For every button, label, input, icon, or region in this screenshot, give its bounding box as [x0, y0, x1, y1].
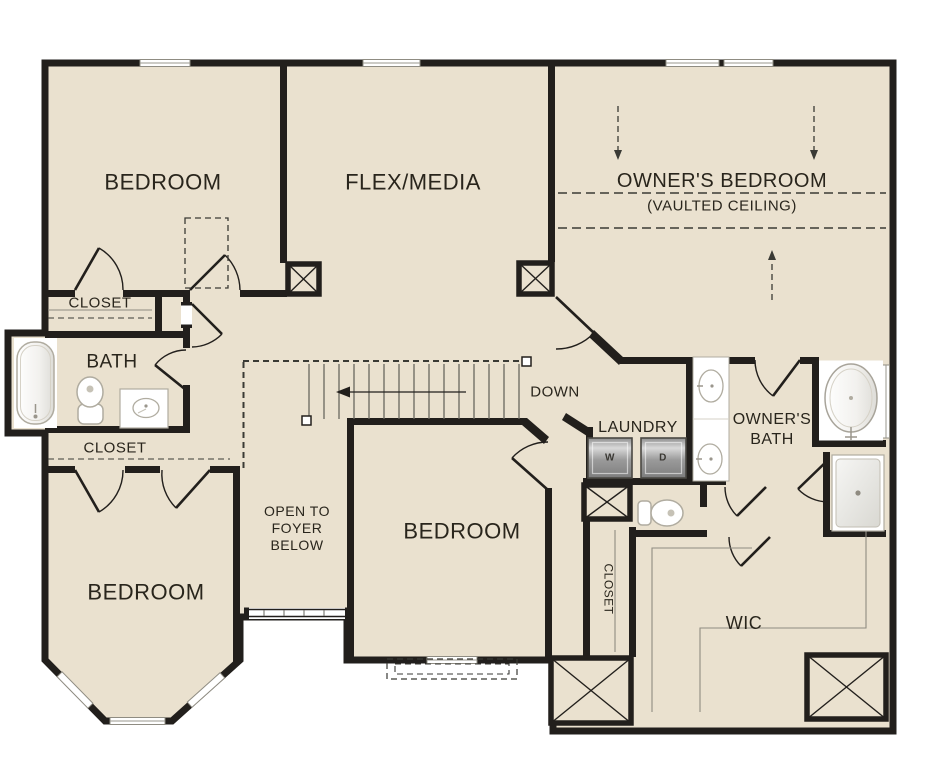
room-label-bedroom-top-left: BEDROOM	[104, 171, 221, 196]
garden-tub-icon	[819, 361, 883, 441]
room-sublabel-vaulted-ceiling: (VAULTED CEILING)	[647, 199, 797, 216]
sink-icon	[120, 389, 168, 428]
open-to-foyer-line-1: OPEN TO	[264, 504, 330, 520]
owners-bath-line-1: OWNER'S	[733, 411, 812, 429]
toilet-icon	[638, 500, 683, 526]
room-label-closet-corridor: CLOSET	[601, 563, 614, 614]
open-to-foyer-line-3: BELOW	[270, 538, 323, 554]
floor-plan: BEDROOM FLEX/MEDIA OWNER'S BEDROOM (VAUL…	[0, 0, 952, 768]
room-label-wic: WIC	[726, 613, 763, 633]
room-label-bath: BATH	[86, 351, 137, 372]
double-vanity	[693, 357, 729, 481]
room-label-laundry: LAUNDRY	[598, 419, 678, 437]
stairs-down-label: DOWN	[530, 385, 580, 402]
floor-plan-drawing	[0, 0, 952, 768]
toilet-icon	[77, 377, 103, 424]
bathtub-icon	[14, 338, 57, 428]
railing	[244, 608, 350, 620]
room-label-closet-lower: CLOSET	[83, 441, 146, 458]
room-label-bedroom-center: BEDROOM	[403, 520, 520, 545]
shower-icon	[832, 455, 884, 531]
room-label-closet-upper: CLOSET	[68, 296, 131, 313]
room-label-bedroom-bottom-left: BEDROOM	[87, 581, 204, 606]
open-to-foyer-line-2: FOYER	[272, 521, 323, 537]
washer-label: W	[605, 452, 615, 463]
room-label-flex-media: FLEX/MEDIA	[345, 171, 481, 196]
dryer-label: D	[659, 452, 667, 463]
owners-bath-line-2: BATH	[750, 431, 793, 449]
room-label-owners-bedroom: OWNER'S BEDROOM	[617, 170, 827, 192]
